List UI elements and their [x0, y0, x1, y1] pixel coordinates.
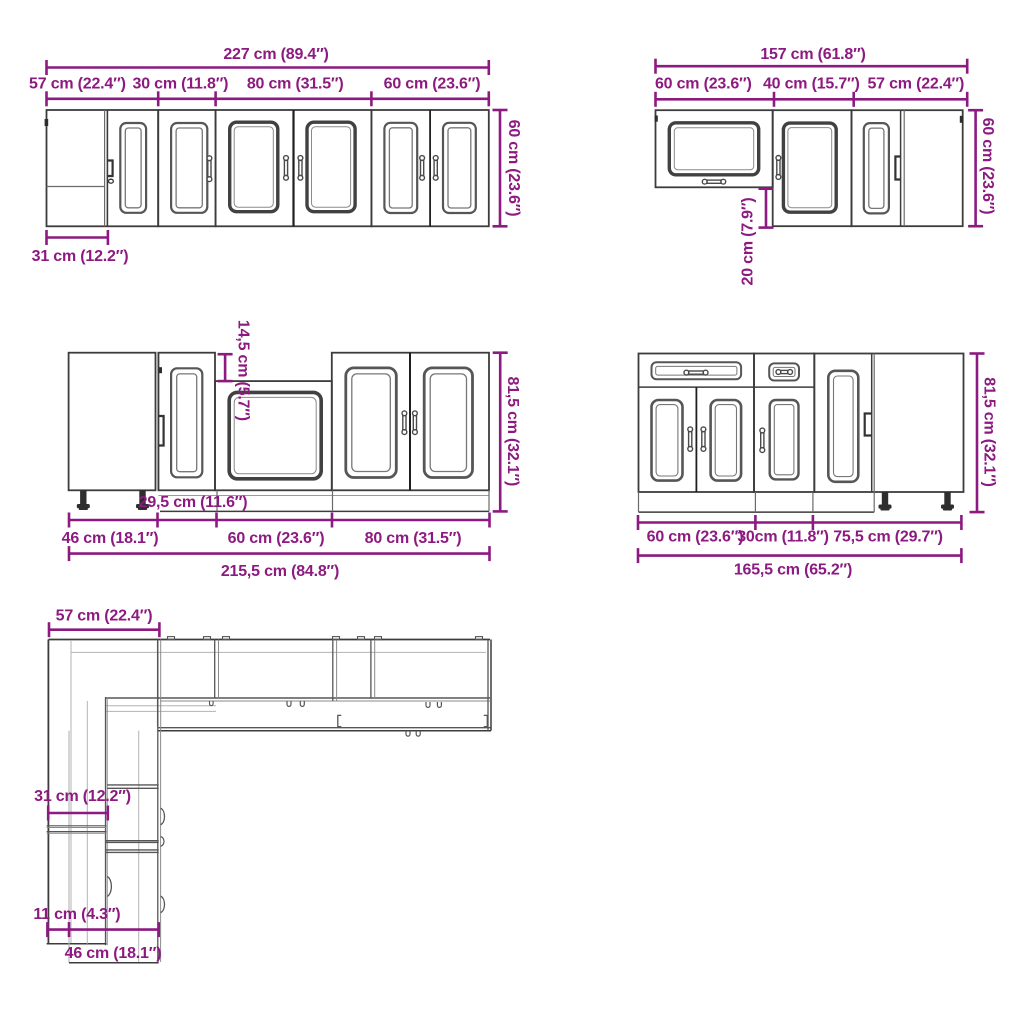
svg-text:31 cm (12.2″): 31 cm (12.2″) [34, 788, 131, 805]
svg-text:29,5 cm (11.6″): 29,5 cm (11.6″) [139, 494, 248, 511]
svg-text:60 cm (23.6″): 60 cm (23.6″) [655, 75, 752, 92]
svg-text:80 cm (31.5″): 80 cm (31.5″) [247, 75, 344, 92]
svg-text:46 cm (18.1″): 46 cm (18.1″) [62, 530, 159, 547]
svg-text:80 cm (31.5″): 80 cm (31.5″) [365, 530, 462, 547]
svg-text:20 cm (7.9″): 20 cm (7.9″) [740, 198, 757, 286]
svg-text:157 cm (61.8″): 157 cm (61.8″) [760, 46, 865, 63]
svg-text:60 cm (23.6″): 60 cm (23.6″) [384, 75, 481, 92]
svg-text:60 cm (23.6″): 60 cm (23.6″) [228, 530, 325, 547]
svg-text:11 cm (4.3″): 11 cm (4.3″) [33, 906, 120, 923]
svg-text:60 cm (23.6″): 60 cm (23.6″) [979, 118, 996, 215]
svg-text:81,5 cm (32.1″): 81,5 cm (32.1″) [980, 377, 997, 487]
svg-text:57 cm (22.4″): 57 cm (22.4″) [56, 608, 153, 625]
svg-text:31 cm (12.2″): 31 cm (12.2″) [32, 248, 129, 265]
svg-text:60 cm (23.6″): 60 cm (23.6″) [647, 529, 744, 546]
svg-text:30 cm (11.8″): 30 cm (11.8″) [133, 75, 229, 92]
svg-text:14,5 cm (5.7″): 14,5 cm (5.7″) [234, 320, 251, 421]
svg-text:57 cm (22.4″): 57 cm (22.4″) [867, 75, 964, 92]
svg-text:60 cm (23.6″): 60 cm (23.6″) [505, 120, 522, 217]
svg-text:46 cm (18.1″): 46 cm (18.1″) [65, 945, 162, 962]
svg-text:215,5 cm (84.8″): 215,5 cm (84.8″) [221, 563, 339, 580]
svg-text:75,5 cm (29.7″): 75,5 cm (29.7″) [833, 529, 943, 546]
svg-text:165,5 cm (65.2″): 165,5 cm (65.2″) [734, 562, 852, 579]
svg-text:30cm (11.8″): 30cm (11.8″) [737, 529, 829, 546]
svg-text:40 cm (15.7″): 40 cm (15.7″) [763, 75, 860, 92]
svg-text:81,5 cm (32.1″): 81,5 cm (32.1″) [504, 376, 521, 486]
svg-text:227 cm (89.4″): 227 cm (89.4″) [223, 46, 328, 63]
svg-text:57 cm (22.4″): 57 cm (22.4″) [29, 75, 126, 92]
